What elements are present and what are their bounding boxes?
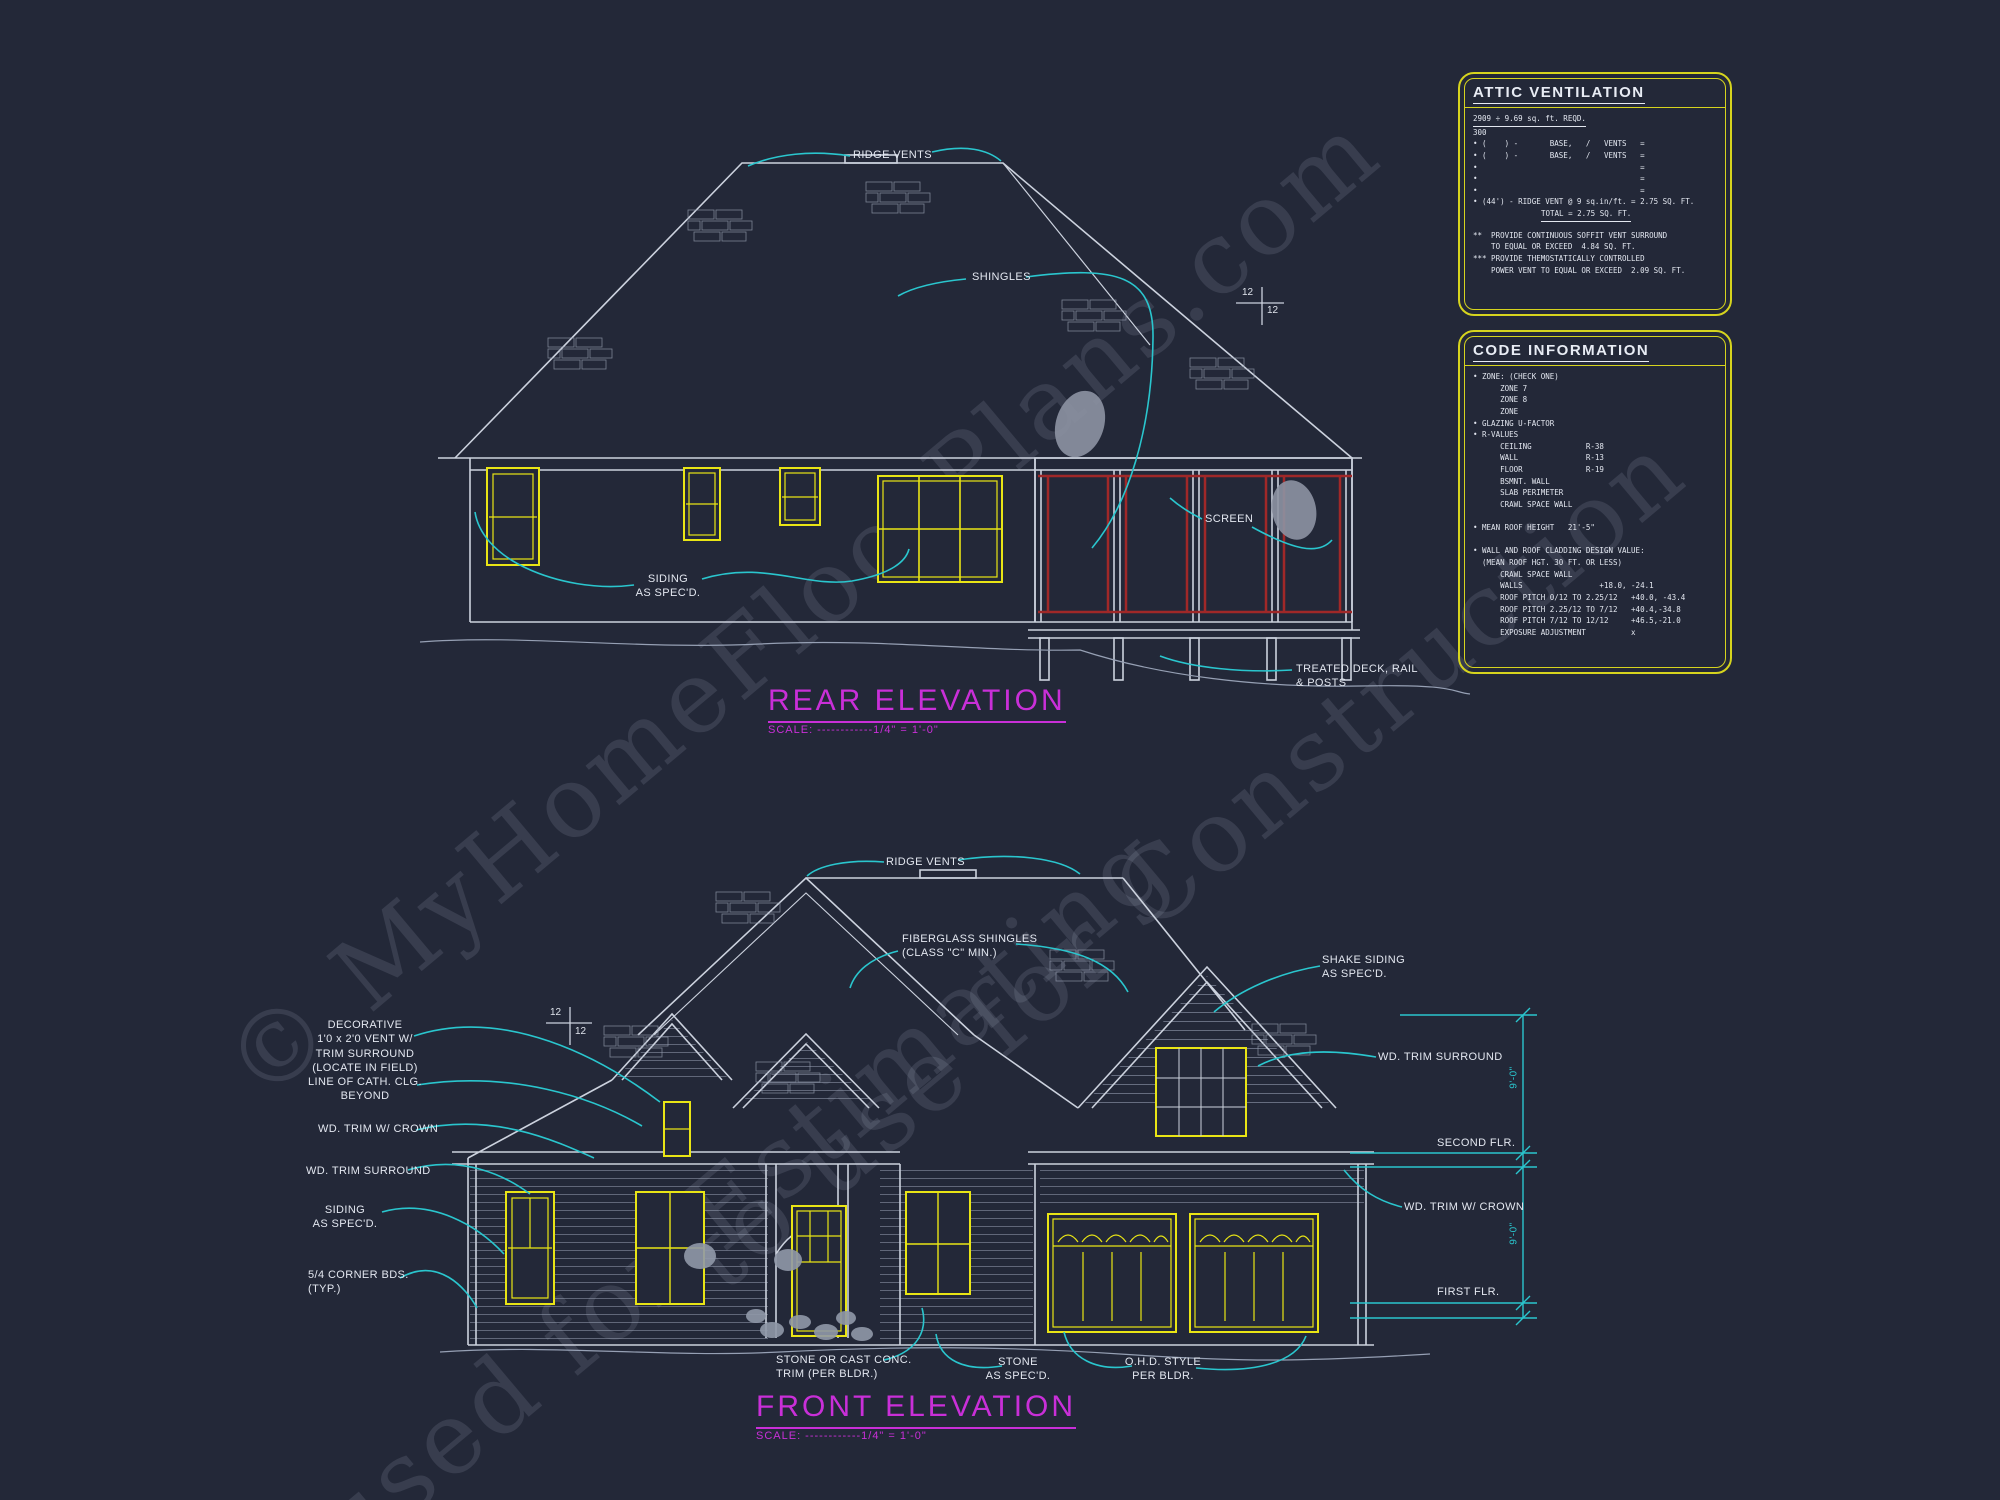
front-pitch-rise: 12 xyxy=(550,1007,561,1018)
code-title-rule xyxy=(1465,365,1725,366)
front-label-second-flr: SECOND FLR. xyxy=(1437,1136,1515,1150)
screen-porch xyxy=(1028,458,1360,630)
attic-ventilation-title: ATTIC VENTILATION xyxy=(1473,84,1645,104)
front-elevation-title: FRONT ELEVATION xyxy=(756,1390,1076,1429)
rear-pitch-rise: 12 xyxy=(1242,287,1253,298)
rear-label-ridge-vents: RIDGE VENTS xyxy=(853,148,932,162)
attic-required-line: 2909 ÷ 9.69 sq. ft. REQD. xyxy=(1473,113,1586,127)
rear-elevation-drawing xyxy=(420,148,1470,694)
front-pitch-run: 12 xyxy=(575,1026,586,1037)
attic-vent-table: 300 • ( ) - BASE, / VENTS = • ( ) - BASE… xyxy=(1473,127,1717,208)
code-information-box: CODE INFORMATION • ZONE: (CHECK ONE) ZON… xyxy=(1458,330,1732,674)
attic-ventilation-box: ATTIC VENTILATION 2909 ÷ 9.69 sq. ft. RE… xyxy=(1458,72,1732,316)
rear-label-shingles: SHINGLES xyxy=(972,270,1031,284)
code-information-body: • ZONE: (CHECK ONE) ZONE 7 ZONE 8 ZONE •… xyxy=(1473,371,1717,638)
rear-label-siding: SIDING AS SPEC'D. xyxy=(618,572,718,601)
front-label-siding: SIDING AS SPEC'D. xyxy=(300,1203,390,1232)
front-label-ohd: O.H.D. STYLE PER BLDR. xyxy=(1118,1355,1208,1384)
blueprint-canvas: © MyHomeFloorPlans.com to use for Constr… xyxy=(0,0,2000,1500)
front-label-crown-left: WD. TRIM W/ CROWN xyxy=(318,1122,438,1136)
code-information-title: CODE INFORMATION xyxy=(1473,342,1649,362)
rear-leader-lines xyxy=(475,148,1332,671)
attic-title-rule xyxy=(1465,107,1725,108)
attic-total-line: TOTAL = 2.75 SQ. FT. xyxy=(1541,208,1631,222)
rear-elevation-scale: SCALE: ------------1/4" = 1'-0" xyxy=(768,724,939,736)
rear-label-deck: TREATED DECK, RAIL & POSTS xyxy=(1296,662,1418,691)
front-label-shake-siding: SHAKE SIDING AS SPEC'D. xyxy=(1322,953,1405,982)
garage-doors xyxy=(1048,1214,1318,1332)
rear-pitch-run: 12 xyxy=(1267,305,1278,316)
front-label-corner-bds: 5/4 CORNER BDS. (TYP.) xyxy=(308,1268,409,1297)
rear-label-screen: SCREEN xyxy=(1205,512,1253,526)
front-label-trim-surround-right: WD. TRIM SURROUND xyxy=(1378,1050,1503,1064)
front-label-fiberglass: FIBERGLASS SHINGLES (CLASS "C" MIN.) xyxy=(902,932,1037,961)
front-dim-lower: 9'-0" xyxy=(1509,1216,1520,1252)
front-grade-line xyxy=(440,1348,1430,1360)
front-elevation-scale: SCALE: ------------1/4" = 1'-0" xyxy=(756,1430,927,1442)
front-dim-upper: 9'-0" xyxy=(1509,1060,1520,1096)
front-label-cath-clg: LINE OF CATH. CLG. BEYOND xyxy=(300,1075,430,1104)
front-label-trim-surround-left: WD. TRIM SURROUND xyxy=(306,1164,431,1178)
front-label-decorative-vent: DECORATIVE 1'0 x 2'0 VENT W/ TRIM SURROU… xyxy=(300,1018,430,1075)
front-label-stone-trim: STONE OR CAST CONC. TRIM (PER BLDR.) xyxy=(776,1353,912,1382)
front-label-stone: STONE AS SPEC'D. xyxy=(978,1355,1058,1384)
rear-roof xyxy=(438,155,1362,458)
front-label-first-flr: FIRST FLR. xyxy=(1437,1285,1499,1299)
front-ridge-vent xyxy=(920,870,976,878)
attic-notes: ** PROVIDE CONTINUOUS SOFFIT VENT SURROU… xyxy=(1473,230,1717,277)
rear-plants xyxy=(1047,384,1322,544)
rear-windows xyxy=(487,468,1002,582)
rear-elevation-title: REAR ELEVATION xyxy=(768,684,1066,723)
front-label-crown-right: WD. TRIM W/ CROWN xyxy=(1404,1200,1524,1214)
front-label-ridge-vents: RIDGE VENTS xyxy=(886,855,965,869)
